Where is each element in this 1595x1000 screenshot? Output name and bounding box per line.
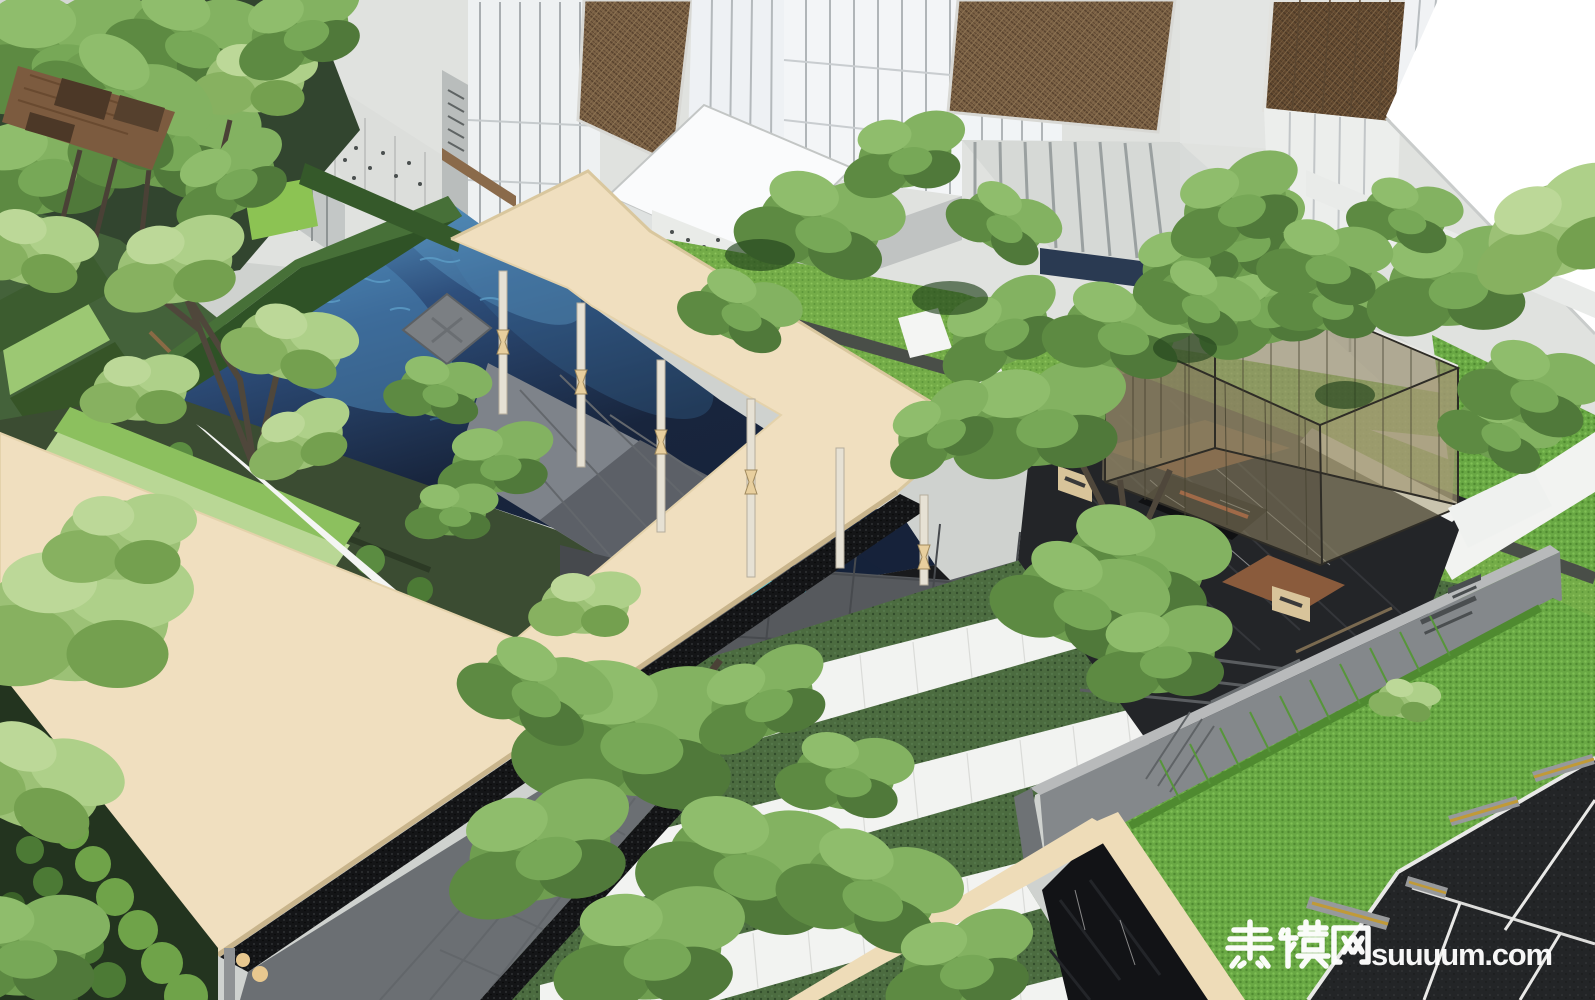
svg-text:suuuum.com: suuuum.com <box>1371 937 1552 972</box>
